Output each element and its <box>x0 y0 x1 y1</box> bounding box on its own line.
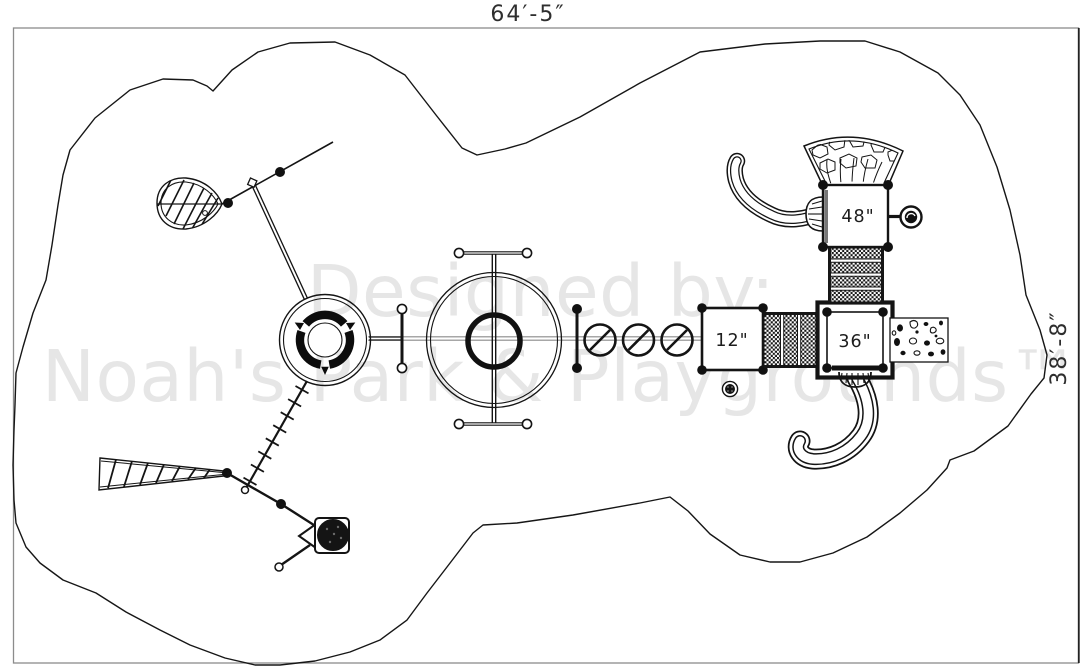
steering-wheel <box>889 207 922 228</box>
rock-climber-fan <box>804 133 903 186</box>
dimension-top-label: 64′-5″ <box>490 2 565 27</box>
post-cap <box>275 167 285 177</box>
bridge-horizontal <box>764 313 816 367</box>
deck-12-label: 12" <box>715 331 748 351</box>
slide-bell-48 <box>806 197 823 231</box>
platform-36: 36" <box>818 303 893 378</box>
handle-bar-bottom <box>454 419 531 428</box>
platform-12: 12" <box>697 303 768 375</box>
deck-36-label: 36" <box>838 332 871 352</box>
platform-48: 48" <box>818 180 893 252</box>
post-cap <box>223 198 233 208</box>
slide-mount-bar <box>832 366 879 371</box>
deck-48-label: 48" <box>841 207 874 227</box>
rock-wall-panel <box>890 318 948 362</box>
dimension-right-label: 38′-8″ <box>1047 310 1072 385</box>
ground-spinner <box>722 381 737 396</box>
drum-seat <box>222 468 349 571</box>
slide-mount-bar <box>825 190 829 243</box>
leaf-climber <box>157 178 222 229</box>
playground-plan-drawing: Designed by: Noah's Park & Playgrounds™ … <box>0 0 1086 671</box>
wedge-ladder <box>99 458 224 490</box>
bridge-vertical <box>829 248 883 302</box>
